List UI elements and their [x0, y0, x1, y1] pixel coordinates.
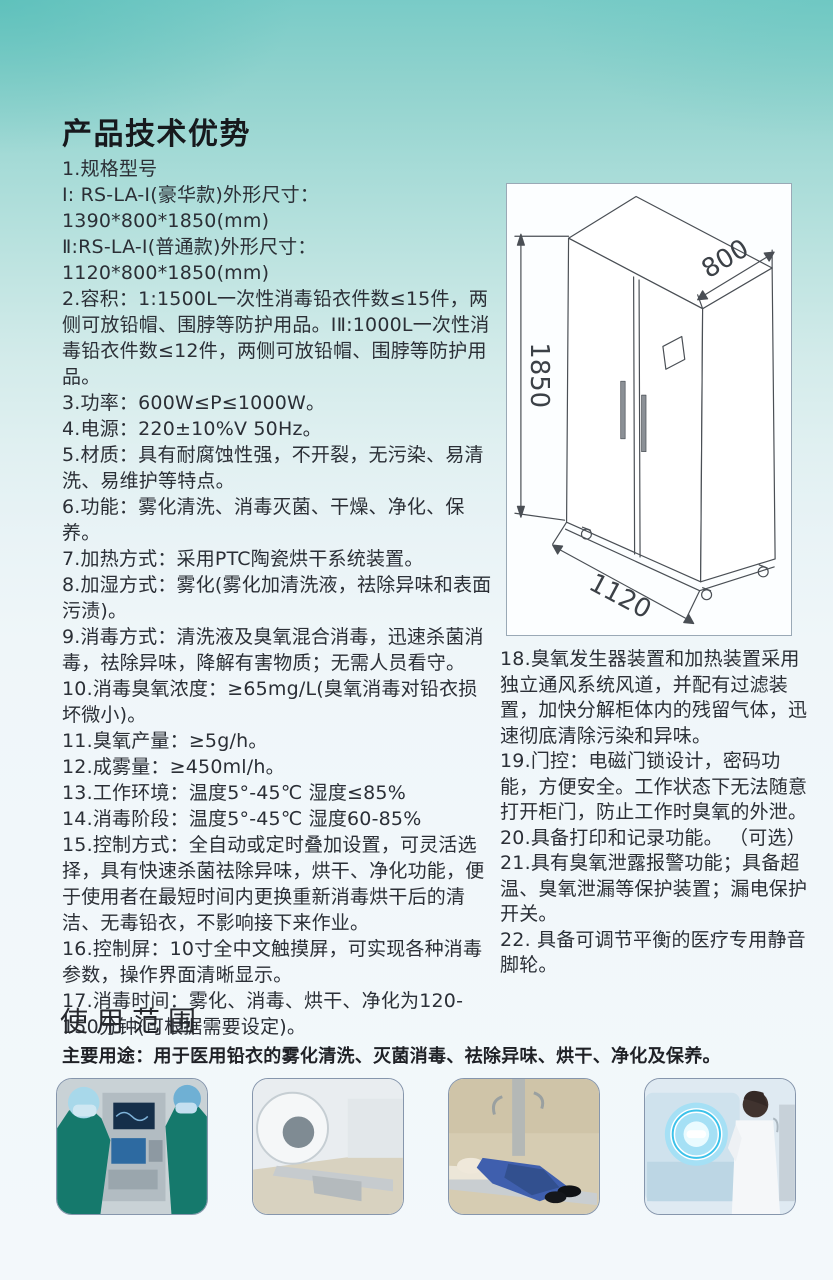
cabinet-right-face — [701, 268, 775, 582]
photo-operating-room — [56, 1078, 208, 1215]
spec-item: 4.电源：220±10%V 50Hz。 — [62, 416, 494, 442]
usage-main-use-text: 主要用途：用于医用铅衣的雾化清洗、灭菌消毒、祛除异味、烘干、净化及保养。 — [62, 1042, 802, 1068]
spec-item: 22. 具备可调节平衡的医疗专用静音脚轮。 — [500, 928, 818, 979]
usage-photos-row — [56, 1078, 796, 1215]
spec-item: Ⅱ:RS-LA-I(普通款)外形尺寸：1120*800*1850(mm) — [62, 234, 494, 286]
spec-list-left: 1.规格型号 I: RS-LA-I(豪华款)外形尺寸：1390*800*1850… — [62, 156, 494, 1040]
spec-item: 21.具有臭氧泄露报警功能；具备超温、臭氧泄漏等保护装置；漏电保护开关。 — [500, 851, 818, 928]
spec-item: 13.工作环境：温度5°-45℃ 湿度≤85% — [62, 780, 494, 806]
spec-item: 3.功率：600W≤P≤1000W。 — [62, 390, 494, 416]
usage-section-title: 使用范围 — [60, 1000, 204, 1040]
spec-item: 6.功能：雾化清洗、消毒灭菌、干燥、净化、保养。 — [62, 494, 494, 546]
photo-radiology-technician — [644, 1078, 796, 1215]
cabinet-line-drawing: 1850 800 1120 — [507, 184, 791, 635]
spec-list-right: 18.臭氧发生器装置和加热装置采用独立通风系统风道，并配有过滤装置，加快分解柜体… — [500, 647, 818, 979]
spec-item: 14.消毒阶段：温度5°-45℃ 湿度60-85% — [62, 806, 494, 832]
spec-item: 2.容积：1:1500L一次性消毒铅衣件数≤15件，两侧可放铅帽、围脖等防护用品… — [62, 286, 494, 390]
spec-item: 15.控制方式：全自动或定时叠加设置，可灵活选择，具有快速杀菌祛除异味，烘干、净… — [62, 832, 494, 936]
brochure-page: 产品技术优势 1.规格型号 I: RS-LA-I(豪华款)外形尺寸：1390*8… — [0, 0, 833, 1280]
cabinet-dimension-diagram: 1850 800 1120 — [506, 183, 792, 636]
page-title: 产品技术优势 — [62, 109, 251, 153]
spec-item: 5.材质：具有耐腐蚀性强，不开裂，无污染、易清洗、易维护等特点。 — [62, 442, 494, 494]
width-dimension-label: 1120 — [584, 568, 656, 625]
photo-ct-scanner-room — [252, 1078, 404, 1215]
spec-item: 1.规格型号 — [62, 156, 494, 182]
right-door-handle — [642, 395, 646, 452]
left-door-handle — [621, 381, 625, 439]
spec-item: 7.加热方式：采用PTC陶瓷烘干系统装置。 — [62, 546, 494, 572]
photo-xray-table-lead-apron — [448, 1078, 600, 1215]
spec-item: 11.臭氧产量：≥5g/h。 — [62, 728, 494, 754]
spec-item: 10.消毒臭氧浓度：≥65mg/L(臭氧消毒对铅衣损坏微小)。 — [62, 676, 494, 728]
spec-item: 8.加湿方式：雾化(雾化加清洗液，祛除异味和表面污渍)。 — [62, 572, 494, 624]
spec-item: 12.成雾量：≥450ml/h。 — [62, 754, 494, 780]
height-dimension-label: 1850 — [524, 342, 554, 408]
spec-item: 9.消毒方式：清洗液及臭氧混合消毒，迅速杀菌消毒，祛除异味，降解有害物质；无需人… — [62, 624, 494, 676]
spec-item: 18.臭氧发生器装置和加热装置采用独立通风系统风道，并配有过滤装置，加快分解柜体… — [500, 647, 818, 749]
spec-item: 20.具备打印和记录功能。 （可选） — [500, 826, 818, 852]
spec-item: 19.门控：电磁门锁设计，密码功能，方便安全。工作状态下无法随意打开柜门，防止工… — [500, 749, 818, 826]
spec-item: 16.控制屏：10寸全中文触摸屏，可实现各种消毒参数，操作界面清晰显示。 — [62, 936, 494, 988]
spec-item: I: RS-LA-I(豪华款)外形尺寸：1390*800*1850(mm) — [62, 182, 494, 234]
